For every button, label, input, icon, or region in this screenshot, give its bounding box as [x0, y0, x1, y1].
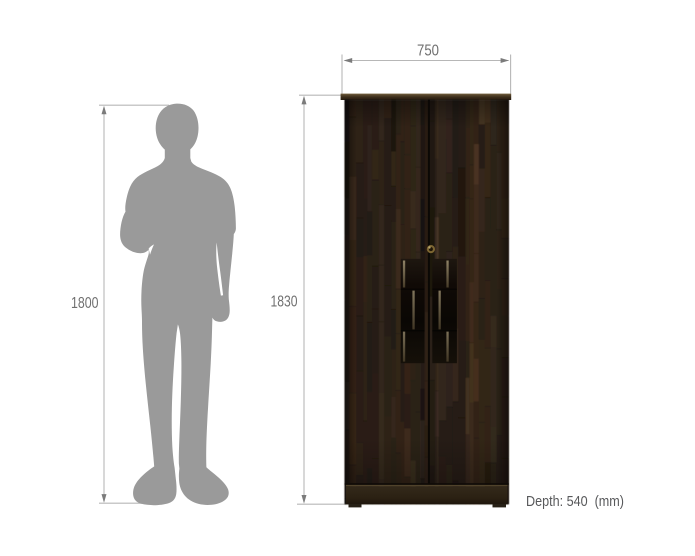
svg-text:1800: 1800: [71, 295, 99, 312]
svg-text:1830: 1830: [271, 293, 298, 310]
svg-text:Depth: 540 (mm): Depth: 540 (mm): [526, 493, 624, 510]
svg-text:750: 750: [417, 43, 439, 60]
